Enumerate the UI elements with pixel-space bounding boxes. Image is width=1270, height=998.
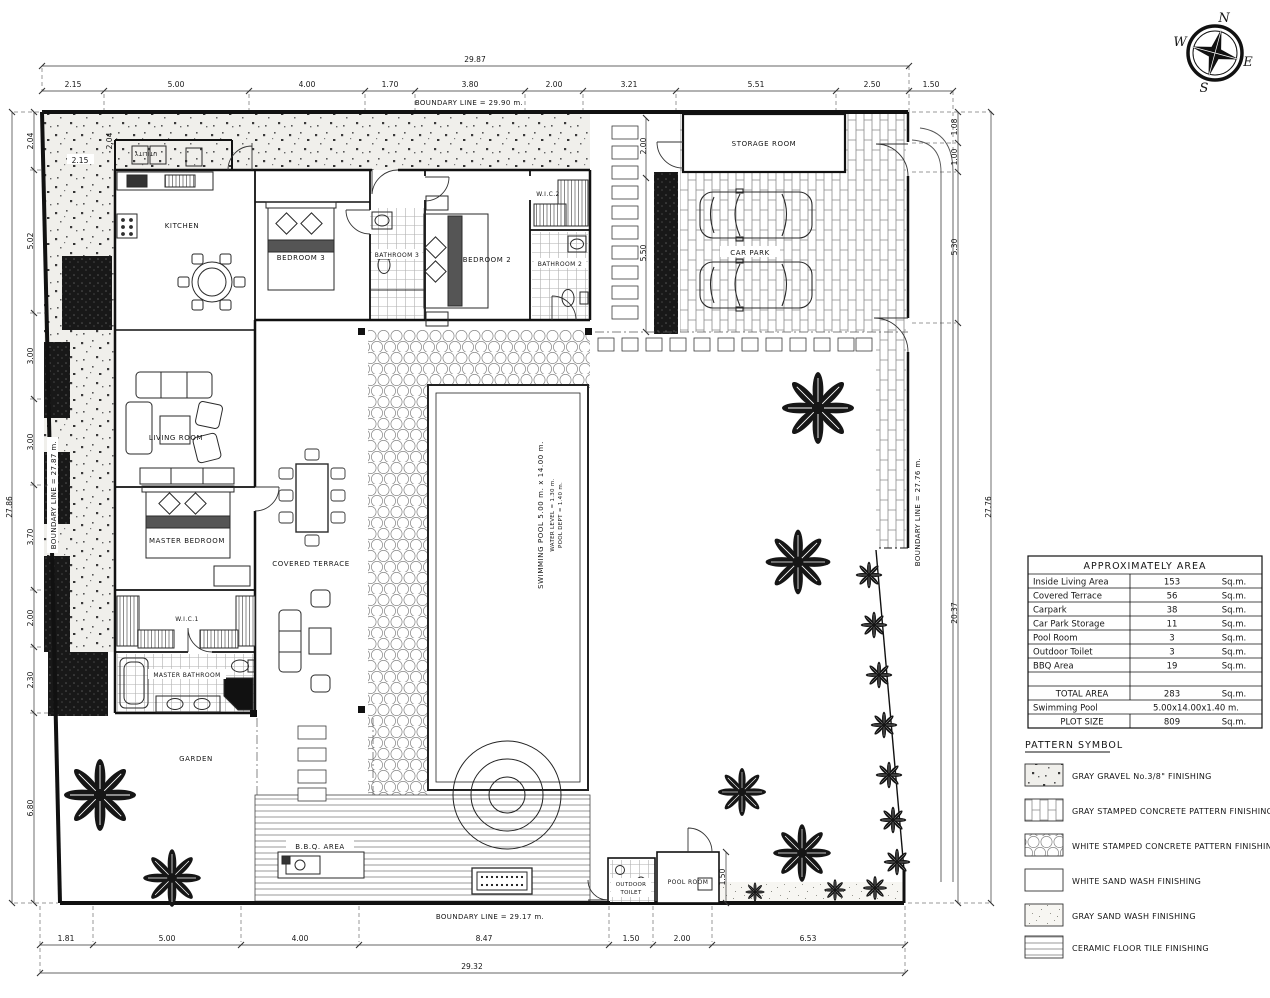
- floor-plan-drawing: UTILITY KITCHEN BEDROOM 3 BATHROOM 3 BED…: [0, 0, 1270, 998]
- floor-plan-sheet: UTILITY KITCHEN BEDROOM 3 BATHROOM 3 BED…: [0, 0, 1270, 998]
- dim-utility: 2.04: [105, 132, 114, 149]
- boundary-label-left: BOUNDARY LINE = 27.87 m.: [50, 441, 58, 549]
- label-bbq-area: B.B.Q. AREA: [295, 843, 344, 851]
- dim-right-overall: 27.76: [984, 496, 993, 518]
- area-total-value: 283: [1164, 690, 1180, 700]
- dim-pool-room: 1.50: [718, 868, 727, 885]
- area-row-unit: Sq.m.: [1222, 648, 1246, 658]
- dim-walkway: 5.50: [639, 244, 648, 261]
- dim-top-4: 3.80: [462, 80, 479, 89]
- legend-label: WHITE SAND WASH FINISHING: [1072, 877, 1201, 886]
- label-covered-terrace: COVERED TERRACE: [272, 560, 350, 568]
- dim-bottom-4: 1.50: [623, 934, 640, 943]
- label-utility: UTILITY: [134, 150, 157, 156]
- dim-bottom-0: 1.81: [58, 934, 75, 943]
- area-total-label: TOTAL AREA: [1055, 690, 1109, 700]
- boundary-label-bottom: BOUNDARY LINE = 29.17 m.: [436, 913, 544, 921]
- dim-left-1: 5.02: [26, 232, 35, 249]
- dim-top-overall: 29.87: [464, 55, 486, 64]
- legend-swatch-tile: [1025, 936, 1063, 958]
- area-row-unit: Sq.m.: [1222, 662, 1246, 672]
- dim-top-8: 2.50: [864, 80, 881, 89]
- bbq-grill: [472, 868, 532, 894]
- label-kitchen: KITCHEN: [165, 222, 200, 230]
- label-master-bedroom: MASTER BEDROOM: [149, 537, 225, 545]
- area-plot-value: 809: [1164, 718, 1180, 728]
- area-row-unit: Sq.m.: [1222, 592, 1246, 602]
- boundary-label-top: BOUNDARY LINE = 29.90 m.: [415, 99, 523, 107]
- dim-right-0: 1.08: [950, 118, 959, 135]
- area-row-name: Carpark: [1033, 606, 1067, 616]
- label-pool-size: SWIMMING POOL 5.00 m. x 14.00 m.: [537, 441, 545, 589]
- brick-walk-right: [876, 332, 906, 548]
- area-row-value: 11: [1167, 620, 1178, 630]
- label-outdoor-toilet-2: TOILET: [619, 890, 641, 896]
- label-garden: GARDEN: [179, 755, 213, 763]
- dim-bottom-3: 8.47: [476, 934, 493, 943]
- legend-swatch-brick: [1025, 799, 1063, 821]
- dim-left-overall: 27.86: [5, 496, 14, 518]
- dim-left-2: 3.00: [26, 347, 35, 364]
- legend-label: CERAMIC FLOOR TILE FINISHING: [1072, 944, 1209, 953]
- bbq-counter: [278, 852, 364, 878]
- pattern-legend: PATTERN SYMBOL GRAY GRAVEL No.3/8" FINIS…: [1025, 740, 1270, 958]
- area-pool-value: 5.00x14.00x1.40 m.: [1153, 704, 1239, 714]
- area-row-unit: Sq.m.: [1222, 620, 1246, 630]
- label-pool-water-level: WATER LEVEL = 1.30 m.: [550, 478, 556, 551]
- area-row-value: 153: [1164, 578, 1180, 588]
- gravel-strip-top: [44, 114, 590, 170]
- label-wic2: W.I.C.2: [536, 191, 560, 198]
- area-pool-label: Swimming Pool: [1033, 704, 1098, 714]
- dim-left-3: 3.00: [26, 433, 35, 450]
- planter-left-4: [44, 556, 70, 652]
- area-row-name: Inside Living Area: [1033, 578, 1109, 588]
- legend-title: PATTERN SYMBOL: [1025, 740, 1123, 751]
- label-pool-depth: POOL DEPT = 1.40 m.: [558, 482, 564, 548]
- label-living-room: LIVING ROOM: [149, 434, 203, 442]
- legend-swatch-sand: [1025, 904, 1063, 926]
- area-row-value: 56: [1167, 592, 1178, 602]
- area-row-name: Car Park Storage: [1033, 620, 1105, 630]
- area-total-unit: Sq.m.: [1222, 690, 1246, 700]
- planter-left-1: [62, 256, 112, 330]
- legend-label: GRAY SAND WASH FINISHING: [1072, 912, 1196, 921]
- dim-left-4: 3.70: [26, 528, 35, 545]
- legend-swatch-hex: [1025, 834, 1063, 856]
- dim-right-2: 5.30: [950, 238, 959, 255]
- compass-west: W: [1173, 35, 1188, 50]
- dim-left-0: 2.04: [26, 132, 35, 149]
- label-outdoor-toilet-1: OUTDOOR: [616, 882, 647, 888]
- legend-label: WHITE STAMPED CONCRETE PATTERN FINISHING: [1072, 842, 1270, 851]
- label-bathroom3: BATHROOM 3: [375, 252, 419, 259]
- dim-bottom-2: 4.00: [292, 934, 309, 943]
- area-plot-unit: Sq.m.: [1222, 718, 1246, 728]
- area-row-unit: Sq.m.: [1222, 578, 1246, 588]
- dim-top-2: 4.00: [299, 80, 316, 89]
- dim-bottom-5: 2.00: [674, 934, 691, 943]
- dim-bottom-1: 5.00: [159, 934, 176, 943]
- hex-paving-band-top: [368, 330, 590, 388]
- swimming-pool: [428, 385, 588, 849]
- dim-right-3: 20.37: [950, 602, 959, 624]
- compass-rose: N W E S: [1173, 11, 1253, 96]
- area-row-unit: Sq.m.: [1222, 606, 1246, 616]
- area-row-value: 38: [1167, 606, 1178, 616]
- area-table: APPROXIMATELY AREA Inside Living Area 15…: [1028, 556, 1262, 728]
- dim-left-7: 6.80: [26, 799, 35, 816]
- dim-walkway-top: 2.00: [639, 137, 648, 154]
- compass-north: N: [1217, 11, 1230, 26]
- dim-top-0: 2.15: [65, 80, 82, 89]
- dim-top-9: 1.50: [923, 80, 940, 89]
- area-row-name: Pool Room: [1033, 634, 1078, 644]
- legend-swatch-white: [1025, 869, 1063, 891]
- dim-bottom-overall: 29.32: [461, 962, 483, 971]
- area-row-name: Outdoor Toilet: [1033, 648, 1093, 658]
- dim-top-5: 2.00: [546, 80, 563, 89]
- dim-bottom-6: 6.53: [800, 934, 817, 943]
- legend-label: GRAY STAMPED CONCRETE PATTERN FINISHING: [1072, 807, 1270, 816]
- compass-east: E: [1242, 55, 1253, 70]
- dim-top-3: 1.70: [382, 80, 399, 89]
- label-storage-room: STORAGE ROOM: [732, 140, 797, 148]
- area-row-name: Covered Terrace: [1033, 592, 1102, 602]
- label-bedroom2: BEDROOM 2: [463, 256, 512, 264]
- dim-kitchen: 2.15: [72, 156, 89, 165]
- dim-top-7: 5.51: [748, 80, 765, 89]
- compass-south: S: [1200, 81, 1209, 96]
- dim-left-5: 2.00: [26, 609, 35, 626]
- area-row-unit: Sq.m.: [1222, 634, 1246, 644]
- area-table-title: APPROXIMATELY AREA: [1084, 561, 1207, 572]
- label-bathroom2: BATHROOM 2: [538, 261, 582, 268]
- area-plot-label: PLOT SIZE: [1060, 718, 1103, 728]
- hex-paving-band-vertical: [368, 330, 430, 795]
- legend-swatch-gravel: [1025, 764, 1063, 786]
- dim-top-1: 5.00: [168, 80, 185, 89]
- dim-left-6: 2.30: [26, 671, 35, 688]
- area-row-name: BBQ Area: [1033, 662, 1074, 672]
- label-pool-room: POOL ROOM: [668, 879, 709, 886]
- dim-top-6: 3.21: [621, 80, 638, 89]
- dim-right-1: 1.00: [950, 148, 959, 165]
- boundary-label-right: BOUNDARY LINE = 27.76 m.: [914, 458, 922, 566]
- planter-walkway: [654, 172, 678, 334]
- area-row-value: 3: [1169, 634, 1174, 644]
- label-car-park: CAR PARK: [730, 249, 770, 257]
- legend-label: GRAY GRAVEL No.3/8" FINISHING: [1072, 772, 1212, 781]
- area-row-value: 19: [1167, 662, 1178, 672]
- area-row-value: 3: [1169, 648, 1174, 658]
- label-bedroom3: BEDROOM 3: [277, 254, 326, 262]
- label-wic1: W.I.C.1: [175, 616, 199, 623]
- label-master-bathroom: MASTER BATHROOM: [153, 672, 220, 679]
